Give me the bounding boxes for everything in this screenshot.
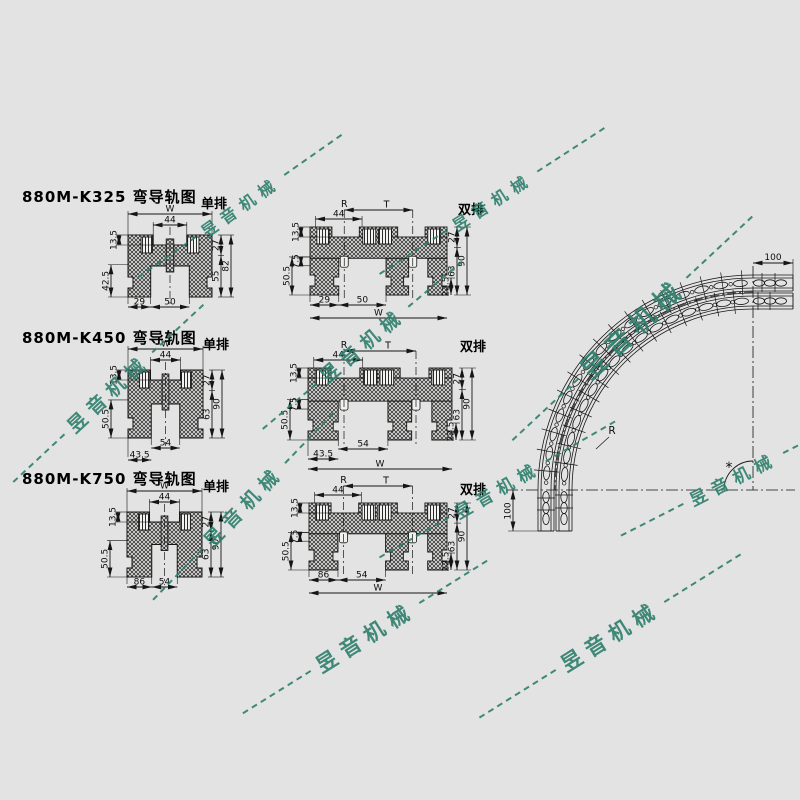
dim-label: 54 — [357, 440, 369, 450]
dim-label: 22.5 — [442, 551, 452, 571]
dim-label: 22.5 — [442, 276, 452, 296]
dim-label: R — [341, 199, 348, 210]
dim-label: 29 — [319, 296, 331, 306]
dim-label: 27 — [448, 507, 458, 518]
cross-section-k450-single: W4413.550.52763905443.5 — [102, 340, 226, 461]
cross-section-k750-double: RT4413.57.550.527639022.58654W — [282, 475, 472, 594]
dim-label: 50.5 — [102, 409, 112, 429]
dim-label: 7.5 — [290, 397, 300, 411]
dim-label: 27 — [203, 374, 213, 385]
dim-label: 63 — [453, 409, 463, 420]
dim-label: 90 — [458, 531, 468, 543]
drawing-sheet: W4413.542.52755822950W4413.550.527639054… — [0, 0, 800, 800]
dim-label: 7.5 — [291, 530, 301, 544]
dim-label: 44 — [333, 351, 345, 361]
dim-label: 27 — [202, 516, 212, 527]
cross-section-k325-single: W4413.542.52755822950 — [102, 205, 235, 308]
dim-label: W — [374, 309, 383, 319]
dim-label: 13.5 — [110, 365, 120, 385]
section-title-k450: 880M-K450 弯导轨图 — [22, 327, 197, 348]
double-row-label-k325: 双排 — [458, 199, 484, 218]
dim-label: 50.5 — [282, 541, 292, 561]
dim-label: 44 — [164, 216, 176, 226]
cross-section-k325-double: RT4413.57.550.527639022.52950W — [283, 199, 472, 319]
dim-label: 90 — [458, 255, 468, 267]
dim-label: 43.5 — [313, 450, 333, 460]
curved-rail-view: 100100R* — [504, 253, 796, 531]
dim-label: 27 — [453, 373, 463, 384]
dim-label: 50 — [164, 298, 176, 308]
dim-label: 63 — [203, 408, 213, 419]
dim-label: 63 — [202, 549, 212, 560]
double-row-label-k450: 双排 — [460, 336, 486, 355]
section-title-k325: 880M-K325 弯导轨图 — [22, 186, 197, 207]
dim-label: 13.5 — [110, 230, 120, 250]
double-row-label-k750: 双排 — [460, 479, 486, 498]
dim-label: 63 — [448, 265, 458, 276]
dim-label: 54 — [159, 578, 171, 588]
dim-label: 27 — [448, 231, 458, 242]
cross-section-k750-single: W4413.550.52763908654 — [101, 482, 225, 588]
single-row-label-k325: 单排 — [201, 193, 227, 212]
cross-section-k450-double: RT4413.57.550.527639022.55443.5W — [281, 340, 477, 470]
dim-label: 50.5 — [101, 549, 111, 569]
dim-label: 100 — [504, 502, 514, 519]
dim-label: 100 — [764, 253, 781, 263]
dim-label: 44 — [332, 486, 344, 496]
dim-label: 90 — [463, 398, 473, 410]
dim-label: T — [383, 200, 390, 211]
dim-label: 43.5 — [130, 451, 150, 461]
dim-label: 44 — [333, 210, 345, 220]
dim-label: 13.5 — [291, 498, 301, 518]
single-row-label-k450: 单排 — [203, 334, 229, 353]
dim-label: 27 — [212, 240, 222, 251]
dim-label: 44 — [159, 493, 171, 503]
dim-label: 50.5 — [283, 266, 293, 286]
dim-label: R — [608, 425, 615, 437]
dim-label: 42.5 — [102, 271, 112, 291]
dim-label: 29 — [134, 298, 146, 308]
single-row-label-k750: 单排 — [203, 476, 229, 495]
dim-label: W — [376, 460, 385, 470]
dim-label: 13.5 — [292, 222, 302, 242]
dim-label: 54 — [160, 439, 172, 449]
dim-label: 50.5 — [281, 410, 291, 430]
dim-label: 13.5 — [290, 363, 300, 383]
dim-label: 82 — [222, 260, 232, 271]
dim-label: 7.5 — [292, 254, 302, 268]
dim-label: T — [384, 341, 391, 352]
dim-label: 50 — [357, 296, 369, 306]
dim-label: R — [340, 475, 347, 486]
dim-label: 86 — [134, 578, 146, 588]
dim-label: 55 — [212, 271, 222, 282]
dim-label: 44 — [160, 351, 172, 361]
dim-label: W — [374, 584, 383, 594]
drawing-canvas: W4413.542.52755822950W4413.550.527639054… — [0, 0, 800, 800]
dim-label: 54 — [356, 571, 368, 581]
dim-label: 63 — [448, 541, 458, 552]
dim-label: 13.5 — [109, 507, 119, 527]
dim-label: 22.5 — [447, 421, 457, 441]
dim-label: 86 — [318, 571, 330, 581]
dim-label: * — [726, 460, 733, 476]
dim-label: R — [341, 340, 348, 351]
section-title-k750: 880M-K750 弯导轨图 — [22, 468, 197, 489]
dim-label: 90 — [212, 539, 222, 551]
dim-label: T — [382, 476, 389, 487]
dim-label: 90 — [213, 398, 223, 410]
